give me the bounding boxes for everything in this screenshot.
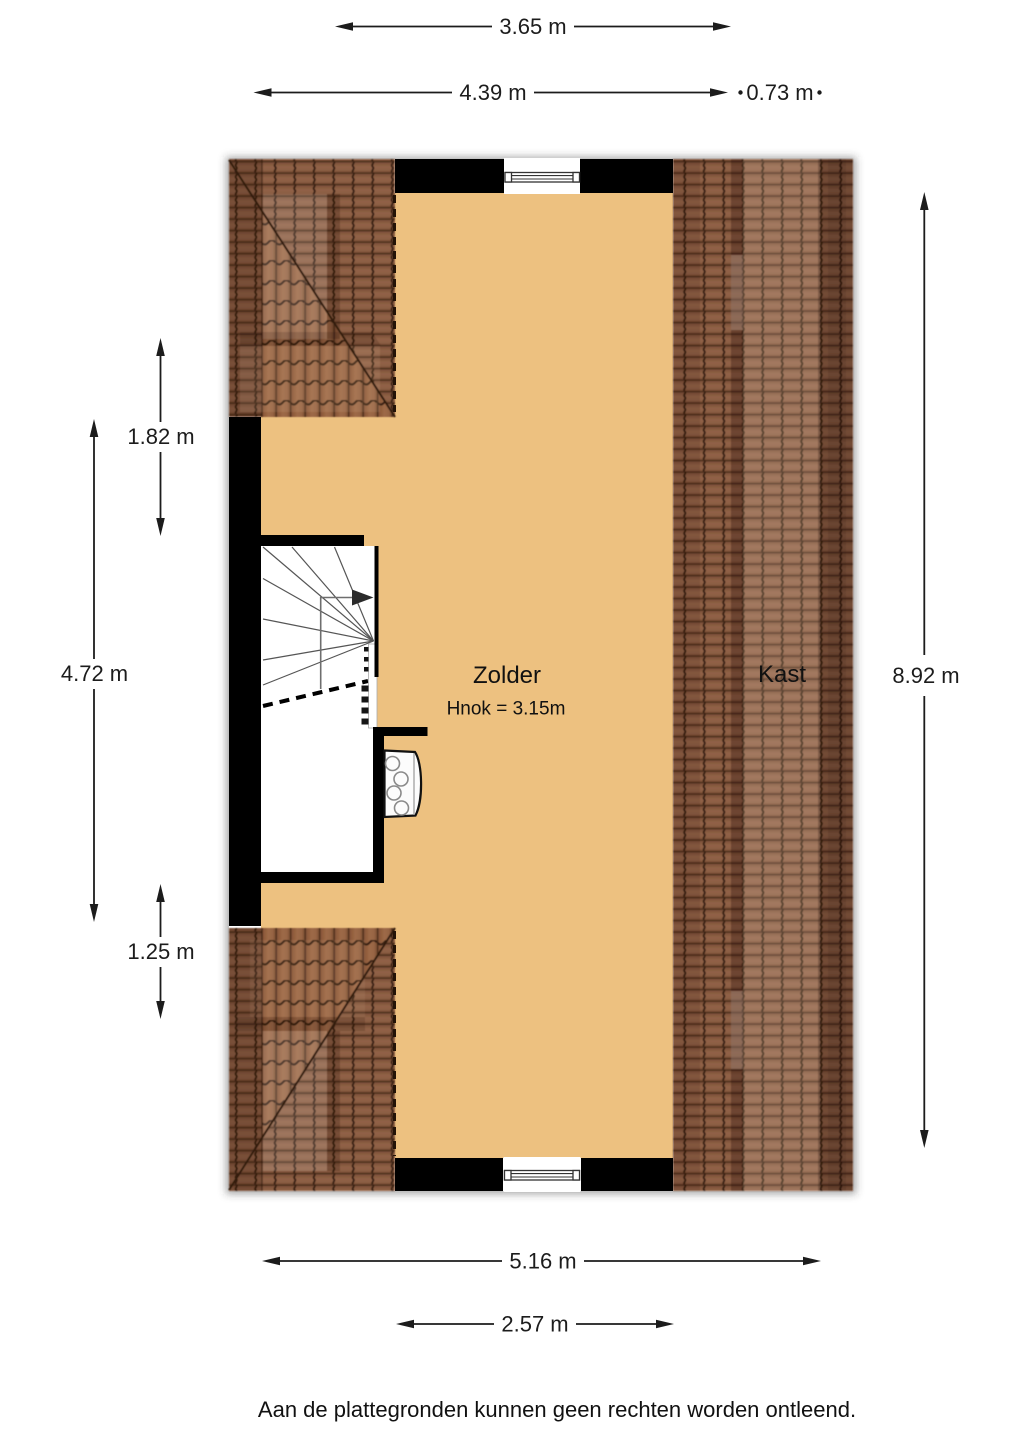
svg-text:1.82 m: 1.82 m <box>127 424 194 449</box>
svg-text:4.72 m: 4.72 m <box>61 661 128 686</box>
svg-text:Zolder: Zolder <box>473 662 541 689</box>
svg-text:0.73 m: 0.73 m <box>746 80 813 105</box>
svg-text:8.92 m: 8.92 m <box>892 663 959 688</box>
svg-text:1.25 m: 1.25 m <box>127 939 194 964</box>
svg-text:5.16 m: 5.16 m <box>509 1249 576 1274</box>
svg-text:3.65 m: 3.65 m <box>499 14 566 39</box>
svg-text:4.39 m: 4.39 m <box>459 80 526 105</box>
svg-text:Kast: Kast <box>758 661 806 688</box>
svg-text:Aan de plattegronden kunnen ge: Aan de plattegronden kunnen geen rechten… <box>258 1397 856 1422</box>
svg-text:2.57 m: 2.57 m <box>501 1312 568 1337</box>
svg-text:Hnok = 3.15m: Hnok = 3.15m <box>447 699 566 720</box>
